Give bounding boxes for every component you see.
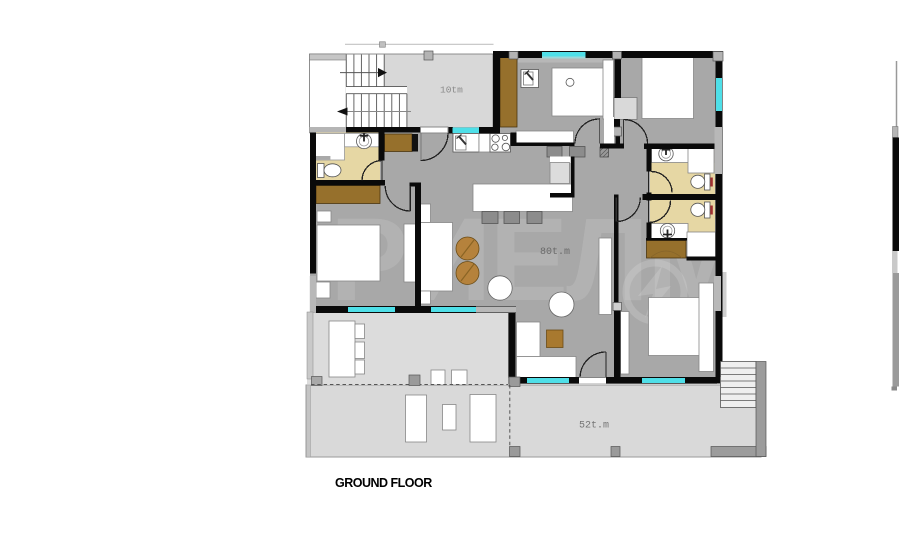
svg-text:80t.m: 80t.m [540, 247, 570, 258]
svg-text:GROUND FLOOR: GROUND FLOOR [335, 476, 432, 490]
svg-text:52t.m: 52t.m [579, 421, 609, 432]
svg-text:10tm: 10tm [440, 85, 463, 96]
